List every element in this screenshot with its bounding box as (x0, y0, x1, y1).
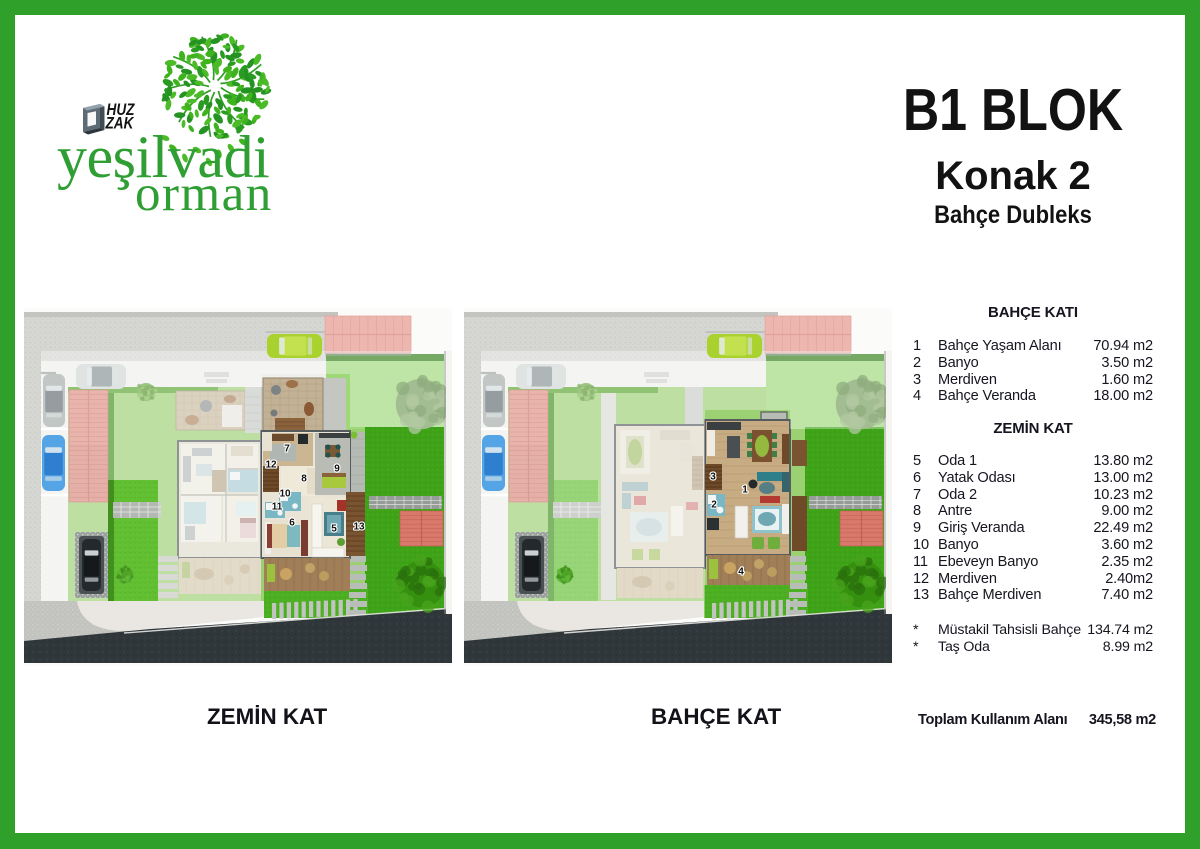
svg-text:2: 2 (711, 500, 717, 511)
svg-text:3: 3 (710, 472, 716, 483)
svg-text:8: 8 (301, 474, 307, 485)
svg-text:1: 1 (742, 485, 748, 496)
svg-text:4: 4 (738, 567, 744, 578)
svg-text:10: 10 (279, 489, 291, 500)
svg-text:orman: orman (135, 166, 273, 222)
svg-text:7: 7 (284, 444, 290, 455)
svg-text:6: 6 (289, 518, 295, 529)
svg-text:11: 11 (272, 502, 283, 513)
svg-text:5: 5 (331, 524, 337, 535)
svg-text:13: 13 (353, 522, 365, 533)
svg-text:9: 9 (334, 464, 340, 475)
svg-text:12: 12 (265, 460, 277, 471)
